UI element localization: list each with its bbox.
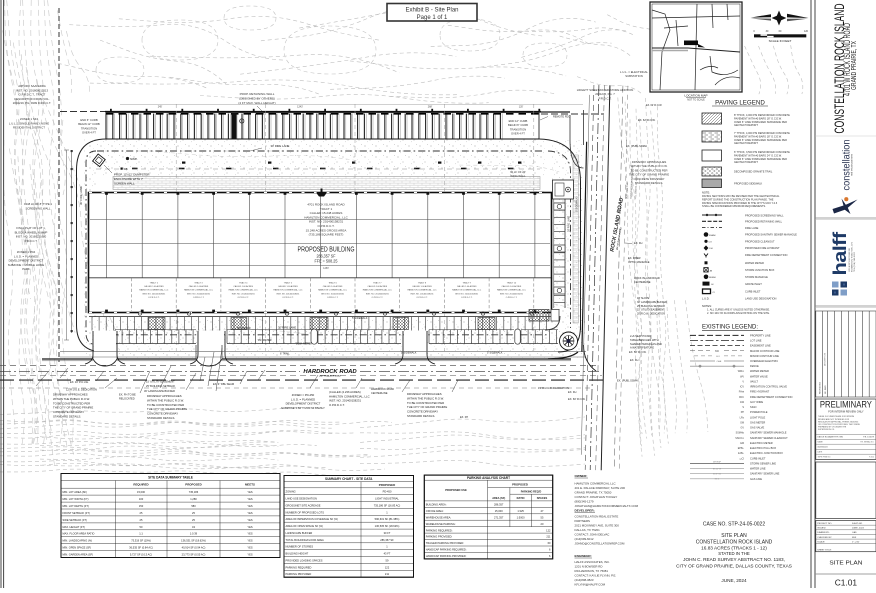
svg-text:CALLED 1.00 ACRES: CALLED 1.00 ACRES (144, 285, 164, 288)
svg-text:DESCRIPTION: DESCRIPTION (825, 352, 827, 366)
svg-text:INST. NO. 201400158231: INST. NO. 201400158231 (232, 293, 256, 295)
svg-text:FIRE HYDRANT: FIRE HYDRANT (750, 390, 770, 394)
svg-text:PRELIMINARY: PRELIMINARY (820, 400, 873, 411)
svg-text:25' BUILDING SETBACK: 25' BUILDING SETBACK (637, 305, 665, 308)
svg-text:1" = 60': 1" = 60' (852, 541, 860, 543)
svg-text:PROPOSED FIRE HYDRANT: PROPOSED FIRE HYDRANT (745, 246, 780, 250)
svg-text:CITY OF GRAND PRAIRIE, DALLAS: CITY OF GRAND PRAIRIE, DALLAS COUNTY, TE… (676, 563, 792, 568)
svg-text:YES: YES (247, 490, 252, 494)
svg-text:30 FT: 30 FT (384, 531, 391, 535)
svg-text:1:325: 1:325 (517, 509, 524, 513)
svg-text:C1.01: C1.01 (835, 578, 858, 588)
svg-text:INST. NO. 201400158231: INST. NO. 201400158231 (366, 293, 390, 295)
svg-text:P.R.D.C.T.: P.R.D.C.T. (25, 239, 38, 243)
svg-text:PROPOSED SIDEWALK: PROPOSED SIDEWALK (734, 181, 763, 185)
svg-text:TRACT 10: TRACT 10 (507, 282, 517, 285)
svg-text:O.P.R.D.C.T.: O.P.R.D.C.T. (329, 403, 345, 407)
svg-text:STANDARD DETAILS.: STANDARD DETAILS. (407, 414, 435, 418)
svg-text:F-312: F-312 (869, 457, 874, 459)
svg-text:CONTACT: KAYLIE FLYNN, P.E.: CONTACT: KAYLIE FLYNN, P.E. (575, 573, 617, 577)
svg-text:CONSTELLATION REAL ESTATE: CONSTELLATION REAL ESTATE (575, 515, 619, 519)
svg-text:5,727 SF (0.13 AC): 5,727 SF (0.13 AC) (130, 552, 152, 556)
svg-text:OWNER:: OWNER: (575, 474, 588, 478)
svg-text:FIRE DEPARTMENT CONNECTION: FIRE DEPARTMENT CONNECTION (750, 395, 792, 399)
svg-text:NOT TO SCALE: NOT TO SCALE (687, 99, 705, 102)
svg-text:GEOTECH REPORT: GEOTECH REPORT (734, 160, 758, 164)
svg-text:211: 211 (546, 535, 551, 539)
svg-text:660: 660 (715, 350, 720, 353)
svg-text:2+6 SEAT PICNIC: 2+6 SEAT PICNIC (630, 334, 651, 338)
svg-text:CALLED 1.00 ACRES: CALLED 1.00 ACRES (457, 285, 477, 288)
svg-text:150: 150 (139, 504, 144, 508)
svg-text:EX. FH: EX. FH (568, 390, 576, 394)
svg-text:1201 N BOWSER RD: 1201 N BOWSER RD (575, 564, 603, 568)
svg-text:PROJECT NO.: PROJECT NO. (817, 523, 832, 525)
svg-text:EX 12" W: EX 12" W (713, 468, 721, 470)
svg-text:MIN. LOT AREA (SF): MIN. LOT AREA (SF) (63, 490, 88, 494)
svg-text:EJB□: EJB□ (738, 452, 744, 455)
svg-text:STATED IN THE: STATED IN THE (718, 551, 750, 556)
svg-text:L.U.D.: L.U.D. (702, 297, 710, 301)
svg-text:DRAWN BY:: DRAWN BY: (817, 531, 830, 534)
svg-text:TRANSITION: TRANSITION (510, 127, 526, 131)
svg-text:SUMMARY CHART - SITE DATA: SUMMARY CHART - SITE DATA (325, 477, 373, 481)
svg-text:PARKING PROVIDED:: PARKING PROVIDED: (426, 535, 453, 539)
svg-text:CENTERLINE: CENTERLINE (371, 391, 388, 395)
svg-text:1:5000: 1:5000 (517, 515, 525, 519)
svg-text:DALLAS, TX 75201: DALLAS, TX 75201 (575, 528, 601, 532)
svg-text:122: 122 (385, 565, 390, 569)
svg-text:EM: EM (740, 442, 744, 445)
svg-text:30' FIRE LANE: 30' FIRE LANE (278, 325, 296, 329)
svg-text:SITE PLAN: SITE PLAN (721, 533, 747, 539)
svg-text:O.P.R.D.C.T.: O.P.R.D.C.T. (416, 297, 428, 299)
svg-text:SIDE SETBACK (FT): SIDE SETBACK (FT) (63, 518, 88, 522)
svg-text:YES: YES (247, 552, 252, 556)
svg-text:CONTACT: JOHN DELVAC: CONTACT: JOHN DELVAC (575, 533, 610, 537)
svg-text:2002219, PG. 4999 D.R.D.C.T.: 2002219, PG. 4999 D.R.D.C.T. (13, 101, 52, 105)
svg-text:30' FIRE LANE: 30' FIRE LANE (568, 215, 571, 232)
svg-text:TO BE CONSTRUCTED PER: TO BE CONSTRUCTED PER (53, 401, 90, 405)
svg-text:GRATE INLET: GRATE INLET (745, 282, 762, 286)
svg-text:GEOTECH REPORT: GEOTECH REPORT (734, 141, 758, 145)
svg-text:STANDARD DETAILS.: STANDARD DETAILS. (147, 416, 175, 420)
svg-text:ICV: ICV (740, 386, 744, 389)
svg-text:MIN. LOT WIDTH (FT): MIN. LOT WIDTH (FT) (63, 497, 89, 501)
svg-text:NOTE:: NOTE: (702, 191, 710, 195)
svg-text:DRIVEWAY APPROACHES: DRIVEWAY APPROACHES (147, 394, 182, 398)
svg-text:CALLED 1.00 ACRES: CALLED 1.00 ACRES (502, 285, 522, 288)
svg-text:OVERHEAD ELECTRIC: OVERHEAD ELECTRIC (750, 359, 778, 363)
svg-text:TO BE CONSTRUCTED PER: TO BE CONSTRUCTED PER (147, 403, 184, 407)
svg-text:JUNE, 2024: JUNE, 2024 (721, 578, 747, 583)
svg-text:TRACT 4: TRACT 4 (239, 282, 248, 285)
svg-text:TRACT 2: TRACT 2 (150, 282, 159, 285)
svg-text:RICHARDSON, TX 75081: RICHARDSON, TX 75081 (575, 569, 609, 573)
svg-text:PR. METER: PR. METER (258, 339, 272, 342)
svg-text:122: 122 (546, 528, 551, 532)
svg-text:PARKING REQUIRED:: PARKING REQUIRED: (426, 528, 453, 532)
svg-text:(735,186 SQUARE FEET): (735,186 SQUARE FEET) (309, 233, 344, 237)
svg-text:P.E. 131679: P.E. 131679 (863, 437, 875, 439)
svg-text:THE CITY OF GRAND PRAIRIE: THE CITY OF GRAND PRAIRIE (147, 407, 187, 411)
svg-text:THE CITY OF GRAND PRAIRIE: THE CITY OF GRAND PRAIRIE (407, 405, 447, 409)
svg-text:PROPOSED BUILDING: PROPOSED BUILDING (298, 247, 355, 254)
svg-text:LIGHT POLE: LIGHT POLE (750, 415, 766, 419)
svg-text:HAMILTON COMMERCIAL, LLC: HAMILTON COMMERCIAL, LLC (452, 289, 482, 292)
svg-text:MEETS: MEETS (245, 483, 255, 487)
svg-text:TRACT 8: TRACT 8 (418, 282, 427, 285)
svg-text:CURB INLET: CURB INLET (745, 289, 761, 293)
svg-text:TRACT 3: TRACT 3 (194, 282, 203, 285)
svg-text:OHE: OHE (717, 361, 722, 363)
svg-text:580: 580 (191, 504, 196, 508)
svg-text:BUILDING HEIGHT: BUILDING HEIGHT (286, 552, 309, 556)
svg-text:REMOTE FDC: REMOTE FDC (553, 115, 570, 119)
svg-text:40,914 SF (0.94 AC): 40,914 SF (0.94 AC) (182, 546, 206, 550)
svg-text:WATER LINE: WATER LINE (750, 467, 766, 471)
svg-text:EX. FIBER: EX. FIBER (628, 256, 641, 260)
svg-text:60 LF OF 20': 60 LF OF 20' (510, 170, 526, 174)
svg-text:MAX. FLOOR AREA RATIO: MAX. FLOOR AREA RATIO (63, 532, 95, 536)
svg-text:SCREEN WALL: SCREEN WALL (114, 181, 135, 185)
svg-text:SHEET TITLE:: SHEET TITLE: (817, 549, 832, 551)
svg-text:HAMILTON COMMERCIAL, LLC: HAMILTON COMMERCIAL, LLC (363, 289, 393, 292)
svg-text:PROP. 12'x12' DUMPSTER: PROP. 12'x12' DUMPSTER (114, 173, 149, 177)
svg-text:FIRE DEPARTMENT CONNECTION: FIRE DEPARTMENT CONNECTION (745, 253, 787, 257)
svg-text:YES: YES (247, 539, 252, 543)
svg-text:BEGIN 12" CURB: BEGIN 12" CURB (78, 122, 100, 126)
svg-text:HALFF ASSOCIATES, INC.: HALFF ASSOCIATES, INC. (575, 560, 611, 564)
svg-text:AREA (SF): AREA (SF) (492, 496, 505, 500)
svg-text:TRACT 7: TRACT 7 (373, 282, 382, 285)
svg-text:CHECKED BY:: CHECKED BY: (817, 537, 832, 539)
svg-text:SDMH: SDMH (130, 158, 137, 161)
svg-text:P.R.D.C.T.: P.R.D.C.T. (599, 96, 612, 100)
svg-text:120: 120 (804, 30, 809, 33)
svg-text:EX. 62' R.O.W.: EX. 62' R.O.W. (646, 104, 662, 107)
svg-text:EX. FH TO BE: EX. FH TO BE (119, 393, 136, 397)
svg-text:16.83 ACRES (TRACKS 1 - 12): 16.83 ACRES (TRACKS 1 - 12) (701, 546, 767, 551)
svg-text:ISSUED:: ISSUED: (817, 528, 826, 530)
svg-text:HAMILTON COMMERCIAL, LLC: HAMILTON COMMERCIAL, LLC (318, 289, 348, 292)
svg-text:5' SIDEWALK: 5' SIDEWALK (352, 317, 368, 320)
svg-text:5' SIDEWALK: 5' SIDEWALK (576, 197, 579, 212)
svg-text:CURB INLET: CURB INLET (750, 456, 766, 460)
svg-text:CALLED 1.00 ACRES: CALLED 1.00 ACRES (368, 285, 388, 288)
svg-text:15' UTILITY EASEMENT: 15' UTILITY EASEMENT (637, 309, 665, 312)
svg-text:5' SIDEWALK: 5' SIDEWALK (487, 352, 503, 355)
svg-text:1280': 1280' (323, 267, 329, 270)
svg-text:JUNE, 2024: JUNE, 2024 (852, 528, 865, 530)
svg-text:GAS VALVE: GAS VALVE (750, 426, 764, 430)
svg-text:36,535 SF (0.84 AC): 36,535 SF (0.84 AC) (129, 546, 153, 550)
svg-text:PROPOSED: PROPOSED (512, 482, 528, 486)
svg-text:SITE DATA SUMMARY TABLE: SITE DATA SUMMARY TABLE (148, 475, 193, 479)
svg-text:O.P.R.D.C.T.: O.P.R.D.C.T. (461, 297, 473, 299)
svg-text:INST. NO. 201400158231: INST. NO. 201400158231 (455, 293, 479, 295)
svg-text:CONSTELLATION ROCK ISLAND: CONSTELLATION ROCK ISLAND (696, 539, 773, 545)
svg-text:(DESIGNED BY OTHERS): (DESIGNED BY OTHERS) (239, 97, 275, 101)
svg-text:PROPERTY LINE: PROPERTY LINE (750, 333, 771, 337)
svg-text:NUMBER OF STORIES: NUMBER OF STORIES (286, 545, 314, 549)
svg-text:CENTERLINE: CENTERLINE (634, 280, 651, 284)
svg-text:CASE NO. STP-24-05-0022: CASE NO. STP-24-05-0022 (703, 522, 765, 528)
svg-text:FH: FH (710, 248, 713, 250)
svg-text:286,357 SF: 286,357 SF (380, 538, 394, 542)
svg-text:5' SIDEWALK: 5' SIDEWALK (401, 352, 417, 355)
svg-text:SUBSTATION: SUBSTATION (625, 74, 642, 78)
svg-text:KFLYNN@HALFF.COM: KFLYNN@HALFF.COM (575, 582, 606, 586)
svg-text:BUILDING AREA:: BUILDING AREA: (426, 502, 447, 506)
svg-text:SHADED PERGOLAS AND: SHADED PERGOLAS AND (630, 342, 662, 346)
svg-text:120': 120' (519, 106, 524, 109)
svg-text:TBPE FIRM NO.: TBPE FIRM NO. (818, 457, 832, 459)
svg-text:PROPOSED CLEANOUT: PROPOSED CLEANOUT (745, 239, 775, 243)
svg-text:IRRIGATION CONTROL VALVE: IRRIGATION CONTROL VALVE (750, 385, 787, 389)
svg-text:GAS LINE: GAS LINE (750, 477, 762, 481)
svg-text:FH⊕: FH⊕ (739, 391, 744, 394)
svg-text:73,319 SF (10%): 73,319 SF (10%) (131, 539, 151, 543)
svg-text:PD-450: PD-450 (383, 490, 392, 494)
svg-text:REGULATORY APPROVAL, PERMIT,: REGULATORY APPROVAL, PERMIT, BIDDING (818, 420, 859, 423)
svg-text:EXISTING LEGEND:: EXISTING LEGEND: (702, 325, 758, 331)
svg-text:GROSS/NET SITE ACREAGE: GROSS/NET SITE ACREAGE (286, 503, 321, 507)
svg-text:(214)699-6012: (214)699-6012 (575, 537, 594, 541)
svg-text:CALLED 1.00 ACRES: CALLED 1.00 ACRES (323, 285, 343, 288)
svg-text:PREPARED BY OR UNDER THE: PREPARED BY OR UNDER THE (818, 426, 847, 429)
svg-text:YES: YES (247, 532, 252, 536)
svg-text:GRAND PRAIRIE, TX: GRAND PRAIRIE, TX (849, 41, 858, 90)
svg-text:6' TRAIL: 6' TRAIL (280, 353, 290, 356)
svg-text:STORM JUNCTION BOX: STORM JUNCTION BOX (745, 268, 775, 272)
svg-text:EX. (PUBL SSMH: EX. (PUBL SSMH (617, 379, 638, 383)
svg-text:30' LANDSCAPE BUFFER: 30' LANDSCAPE BUFFER (637, 301, 667, 304)
svg-text:13' SLOPE: 13' SLOPE (637, 297, 650, 300)
svg-text:WATER METER: WATER METER (745, 261, 764, 265)
svg-text:AREA OF IMPERVIOUS COVERAGE SF: AREA OF IMPERVIOUS COVERAGE SF (%) (286, 517, 339, 521)
svg-text:ELECTRIC PULL BOX: ELECTRIC PULL BOX (750, 446, 776, 450)
svg-text:MIN. LANDSCAPING (%): MIN. LANDSCAPING (%) (63, 539, 93, 543)
svg-text:15,000: 15,000 (137, 490, 145, 494)
svg-text:LAND USE DESIGNATION: LAND USE DESIGNATION (286, 497, 317, 501)
svg-text:YES: YES (247, 518, 252, 522)
svg-text:TRACT 9: TRACT 9 (463, 282, 472, 285)
svg-text:ENCLOSURE WITH 7': ENCLOSURE WITH 7' (114, 177, 144, 181)
svg-text:O.P.R.D.C.T.: O.P.R.D.C.T. (282, 297, 294, 299)
svg-text:VAULT: VAULT (750, 379, 758, 383)
svg-text:GM: GM (740, 421, 744, 424)
svg-text:YES: YES (247, 497, 252, 501)
svg-text:THESE DOCUMENTS ARE FOR IN: THESE DOCUMENTS ARE FOR INTERIM (818, 415, 855, 418)
svg-text:ZONING: ZONING (286, 490, 296, 494)
svg-text:ENGINEER:: ENGINEER: (575, 554, 592, 558)
svg-text:54047.001: 54047.001 (852, 523, 863, 525)
svg-text:SSMH: SSMH (709, 235, 716, 237)
svg-text:(800)345-1279: (800)345-1279 (575, 500, 594, 504)
svg-text:A WATER FEATURE: A WATER FEATURE (630, 346, 654, 350)
svg-text:real estate partners: real estate partners (849, 153, 853, 176)
svg-text:100: 100 (139, 497, 144, 501)
svg-text:NAME: NAME (818, 440, 824, 443)
svg-text:HAMILTON COMMERCIAL, LLC: HAMILTON COMMERCIAL, LLC (229, 289, 259, 292)
svg-text:JOHND@CONSTELLATIONREP.COM: JOHND@CONSTELLATIONREP.COM (575, 542, 625, 546)
svg-text:KAYLIE ELIZABETH FLYNN: KAYLIE ELIZABETH FLYNN (818, 436, 844, 439)
svg-text:SSMH●: SSMH● (736, 432, 745, 435)
svg-text:OFFICE AREA:: OFFICE AREA: (426, 509, 444, 513)
svg-text:43 FT: 43 FT (384, 552, 391, 556)
svg-text:CAD: CAD (852, 531, 857, 534)
svg-text:1:1: 1:1 (139, 532, 143, 536)
svg-text:FOR INTERIM REVIEW ONLY: FOR INTERIM REVIEW ONLY (828, 410, 864, 414)
svg-text:GUY WIRE: GUY WIRE (750, 400, 763, 404)
svg-text:RESIDENTIAL DISTRICT: RESIDENTIAL DISTRICT (13, 126, 45, 130)
svg-text:NUMBER OF PROPOSED LOTS: NUMBER OF PROPOSED LOTS (286, 510, 325, 514)
svg-text:401 E. PALACE PARKWAY, SUITE 2: 401 E. PALACE PARKWAY, SUITE 200 (575, 486, 626, 490)
svg-text:HANDICAP PARKING PROVIDED:: HANDICAP PARKING PROVIDED: (426, 554, 467, 558)
svg-text:MIN. GARDEN AREA (SF): MIN. GARDEN AREA (SF) (63, 552, 94, 556)
svg-text:PP: PP (741, 411, 745, 414)
svg-text:EX 8" SS: EX 8" SS (713, 473, 722, 475)
svg-text:TRANSITION: TRANSITION (81, 126, 97, 130)
svg-text:STORM SEWER LINE: STORM SEWER LINE (750, 461, 776, 465)
svg-text:LIGHT INDUSTRIAL: LIGHT INDUSTRIAL (375, 497, 399, 501)
svg-text:EX. FH: EX. FH (630, 358, 638, 362)
svg-text:PARK: PARK (22, 267, 30, 271)
svg-text:EX. 50' R.O.W.: EX. 50' R.O.W. (629, 350, 647, 354)
svg-text:TRACT 5: TRACT 5 (284, 282, 293, 285)
svg-text:EX. FH: EX. FH (460, 416, 468, 419)
svg-text:OVER 4 FT: OVER 4 FT (82, 131, 96, 135)
svg-text:596,631 SF (81.38%): 596,631 SF (81.38%) (375, 517, 400, 521)
svg-text:AREA OF OPEN SPACE SF (%): AREA OF OPEN SPACE SF (%) (286, 524, 324, 528)
svg-text:SDMH: SDMH (709, 277, 716, 279)
svg-text:CALLED 1.00 ACRES: CALLED 1.00 ACRES (189, 285, 209, 288)
svg-text:O.P.R.D.C.T.: O.P.R.D.C.T. (193, 297, 205, 299)
svg-text:KEF: KEF (852, 537, 857, 539)
svg-text:DOM. METER: DOM. METER (296, 343, 312, 346)
svg-text:LANDSCAPE BUFFER: LANDSCAPE BUFFER (286, 531, 313, 535)
svg-text:O.P.R.D.C.T.: O.P.R.D.C.T. (148, 297, 160, 299)
svg-text:STORM MANHOLE: STORM MANHOLE (745, 275, 768, 279)
svg-text:ROCK ISLAND ROAD: ROCK ISLAND ROAD (634, 276, 660, 280)
svg-text:RELOCATED: RELOCATED (119, 397, 135, 401)
svg-text:735,186: 735,186 (189, 490, 199, 494)
svg-text:FRONT SETBACK (FT): FRONT SETBACK (FT) (63, 511, 90, 515)
svg-text:SUBZONE 1.5R = MOL 94 FAMILY: SUBZONE 1.5R = MOL 94 FAMILY (281, 406, 325, 410)
svg-text:1. ALL CURBS ARE 6" UNLESS N: 1. ALL CURBS ARE 6" UNLESS NOTED OTHERWI… (707, 307, 770, 311)
svg-text:NOTES:: NOTES: (702, 304, 712, 308)
svg-text:735,186 SF (16.83 AC): 735,186 SF (16.83 AC) (374, 503, 401, 507)
svg-text:NO. DATE: NO. DATE (824, 384, 827, 394)
svg-text:THE CITY OF GRAND PRAIRIE: THE CITY OF GRAND PRAIRIE (53, 406, 93, 410)
svg-text:1243': 1243' (297, 106, 303, 109)
svg-text:GRAND PRAIRIE, TX 75050: GRAND PRAIRIE, TX 75050 (575, 491, 612, 495)
svg-text:245': 245' (158, 106, 163, 109)
svg-text:O.P.R.D.C.T.: O.P.R.D.C.T. (327, 297, 339, 299)
svg-text:OVER 4 FT: OVER 4 FT (511, 132, 525, 136)
svg-text:TOTAL BUILDING/FLOOR AREA: TOTAL BUILDING/FLOOR AREA (286, 538, 325, 542)
svg-text:EX. 62' R.O.W.: EX. 62' R.O.W. (638, 118, 656, 122)
svg-text:LOCATION MAP: LOCATION MAP (684, 93, 707, 97)
svg-text:DEVELOPER:: DEVELOPER: (575, 509, 595, 513)
svg-text:INST. NO. 201400158231: INST. NO. 201400158231 (276, 293, 300, 295)
svg-text:136,531 SF (18.62%): 136,531 SF (18.62%) (181, 539, 206, 543)
svg-text:(50' PUBLIC R.O.W.): (50' PUBLIC R.O.W.) (320, 375, 341, 377)
svg-text:CB: CB (124, 168, 128, 171)
svg-text:CALLED 1.00 ACRES: CALLED 1.00 ACRES (233, 285, 253, 288)
svg-text:PARKING REQUIRED: PARKING REQUIRED (286, 565, 312, 569)
svg-text:(214)808-3823: (214)808-3823 (575, 578, 594, 582)
svg-text:PROPOSED: PROPOSED (379, 483, 395, 487)
svg-text:MAX. HEIGHT (FT): MAX. HEIGHT (FT) (63, 525, 86, 529)
svg-text:YES: YES (247, 546, 252, 550)
svg-text:JOHN C. READ SURVEY ABSTRACT N: JOHN C. READ SURVEY ABSTRACT NO. 1183, (683, 557, 785, 562)
svg-text:WAREHOUSE AREA:: WAREHOUSE AREA: (426, 515, 452, 519)
svg-text:PAVING LEGEND: PAVING LEGEND (715, 100, 765, 107)
svg-text:136,535 SF (18.62%): 136,535 SF (18.62%) (375, 524, 400, 528)
svg-text:30' FIRE LANE: 30' FIRE LANE (79, 186, 83, 205)
svg-text:WITHIN THE PUBLIC R.O.W.: WITHIN THE PUBLIC R.O.W. (147, 398, 184, 402)
svg-text:STANDARD DETAILS.: STANDARD DETAILS. (53, 415, 81, 419)
svg-text:YES: YES (247, 511, 252, 515)
svg-text:MINOR CONTOUR LINE: MINOR CONTOUR LINE (750, 354, 779, 358)
svg-text:WM⊙: WM⊙ (738, 370, 744, 373)
svg-text:SUPERVISION OF:: SUPERVISION OF: (818, 429, 835, 431)
svg-text:MAJOR CONTOUR LINE: MAJOR CONTOUR LINE (750, 349, 780, 353)
svg-text:O.P.R.D.C.T.: O.P.R.D.C.T. (372, 297, 384, 299)
svg-text:Exhibit B - Site Plan: Exhibit B - Site Plan (405, 8, 458, 14)
svg-text:EX. (PUBL SDMH: EX. (PUBL SDMH (626, 144, 647, 148)
svg-text:PARKING PROVIDED: PARKING PROVIDED (286, 572, 312, 576)
svg-text:23,773 SF (0.55 AC): 23,773 SF (0.55 AC) (182, 552, 206, 556)
svg-text:FFE = 508.25: FFE = 508.25 (315, 258, 339, 263)
svg-text:GEOTECH REPORT: GEOTECH REPORT (734, 123, 758, 127)
svg-text:MIN. LOT DEPTH (FT): MIN. LOT DEPTH (FT) (63, 504, 89, 508)
svg-text:PARKING REQ'D: PARKING REQ'D (521, 489, 542, 493)
svg-text:WING WALL: WING WALL (510, 174, 526, 178)
svg-text:INST. NO. 201400158231: INST. NO. 201400158231 (411, 293, 435, 295)
svg-text:JONATHAN@HAMILTONCOMMERCIALTX.: JONATHAN@HAMILTONCOMMERCIALTX.COM (575, 504, 639, 508)
svg-text:HAMILTON COMMERCIAL, LLC: HAMILTON COMMERCIAL, LLC (407, 289, 437, 292)
svg-text:O.P.R.D.C.T.: O.P.R.D.C.T. (506, 297, 518, 299)
svg-text:GAS METER: GAS METER (750, 420, 765, 424)
svg-text:LAND USE DESIGNATION: LAND USE DESIGNATION (745, 297, 776, 301)
svg-text:12' R.U.U.E. DEDICATION: 12' R.U.U.E. DEDICATION (66, 388, 97, 392)
svg-text:06/20/2024: 06/20/2024 (818, 447, 829, 449)
svg-text:CONTACT: JONATHAN TOOLEY: CONTACT: JONATHAN TOOLEY (575, 495, 618, 499)
svg-text:O.P.R.D.C.T.: O.P.R.D.C.T. (238, 297, 250, 299)
svg-text:SCALE:: SCALE: (817, 540, 825, 543)
svg-text:286,357: 286,357 (494, 502, 504, 506)
svg-text:PROVIDED LOADING SPACES: PROVIDED LOADING SPACES (286, 558, 323, 562)
svg-text:EX. 10' P.U.U.E.: EX. 10' P.U.U.E. (70, 380, 89, 384)
svg-text:WAREHOUSE PARKING:: WAREHOUSE PARKING: (426, 522, 456, 526)
svg-text:GV: GV (741, 427, 745, 430)
svg-text:ELECTRIC METER: ELECTRIC METER (750, 441, 773, 445)
svg-text:TEL (214) 346-6200: TEL (214) 346-6200 (854, 251, 856, 272)
svg-text:25' BUILDING SETBACK: 25' BUILDING SETBACK (146, 384, 175, 388)
svg-text:15' UTILITY EASEMENT: 15' UTILITY EASEMENT (146, 380, 175, 384)
svg-text:SANITARY SEWER MANHOLE: SANITARY SEWER MANHOLE (750, 431, 787, 435)
svg-text:CALLED 1.00 ACRES: CALLED 1.00 ACRES (278, 285, 298, 288)
svg-text:MIN. OPEN SPACE (SF): MIN. OPEN SPACE (SF) (63, 546, 92, 550)
svg-text:EASEMENT LINE: EASEMENT LINE (750, 344, 771, 348)
svg-text:WATER METER: WATER METER (750, 369, 769, 373)
svg-text:INST. NO. 201400158231: INST. NO. 201400158231 (321, 293, 345, 295)
svg-text:CONCRETE DRIVEWAY: CONCRETE DRIVEWAY (53, 410, 84, 414)
svg-text:BEGIN 6" CURB: BEGIN 6" CURB (508, 123, 528, 127)
